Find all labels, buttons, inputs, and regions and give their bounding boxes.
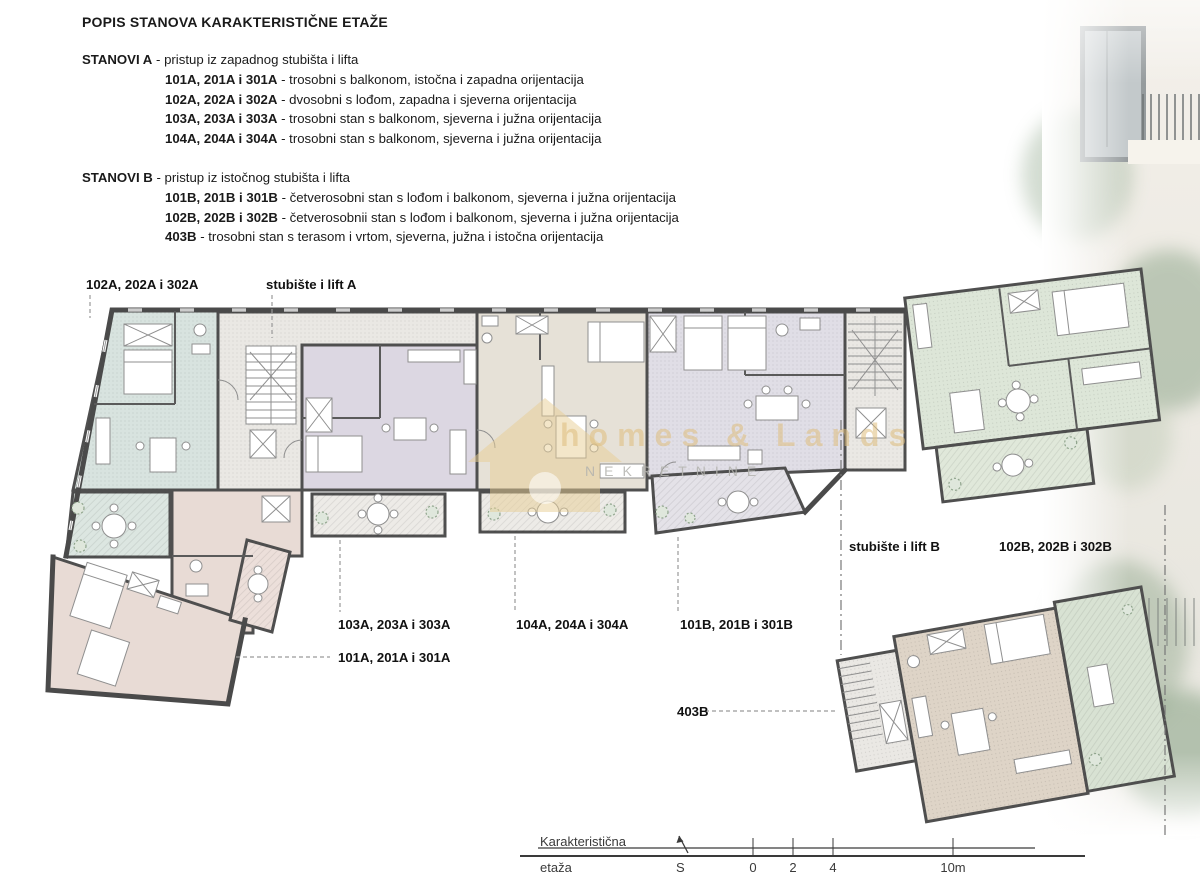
outer-wall-slant	[805, 470, 845, 512]
north-arrow	[677, 836, 689, 853]
block-403b	[834, 587, 1175, 832]
plan-label-103a: 103A, 203A i 303A	[338, 617, 451, 632]
scale-ticks	[753, 838, 953, 855]
block-102b	[905, 269, 1166, 503]
scale-caption-2: etaža	[540, 860, 573, 875]
plan-label-102a: 102A, 202A i 302A	[86, 277, 199, 292]
scale-tick-0: 0	[749, 860, 756, 875]
plan-label-stairs-b: stubište i lift B	[849, 539, 940, 554]
plan-label-102b: 102B, 202B i 302B	[999, 539, 1112, 554]
plan-label-101b: 101B, 201B i 301B	[680, 617, 793, 632]
scale-tick-2: 2	[789, 860, 796, 875]
watermark-brand: homes & Lands	[560, 417, 915, 453]
north-label: S	[676, 860, 685, 875]
scale-tick-4: 4	[829, 860, 836, 875]
scale-tick-10m: 10m	[940, 860, 965, 875]
plan-label-104a: 104A, 204A i 304A	[516, 617, 629, 632]
plan-label-stairs-a: stubište i lift A	[266, 277, 357, 292]
scale-bar: Karakteristična etaža S 0 2 4 10m	[520, 834, 1085, 875]
floor-plan-drawing: homes & Lands NEKRETNINE 102A, 202A i 30…	[0, 0, 1200, 891]
floor-plan-sheet: POPIS STANOVA KARAKTERISTIČNE ETAŽE STAN…	[0, 0, 1200, 891]
plan-label-403b: 403B	[677, 704, 709, 719]
watermark-house-door	[529, 472, 561, 504]
plan-label-101a: 101A, 201A i 301A	[338, 650, 451, 665]
watermark-tagline: NEKRETNINE	[585, 463, 765, 479]
scale-caption-1: Karakteristična	[540, 834, 627, 849]
